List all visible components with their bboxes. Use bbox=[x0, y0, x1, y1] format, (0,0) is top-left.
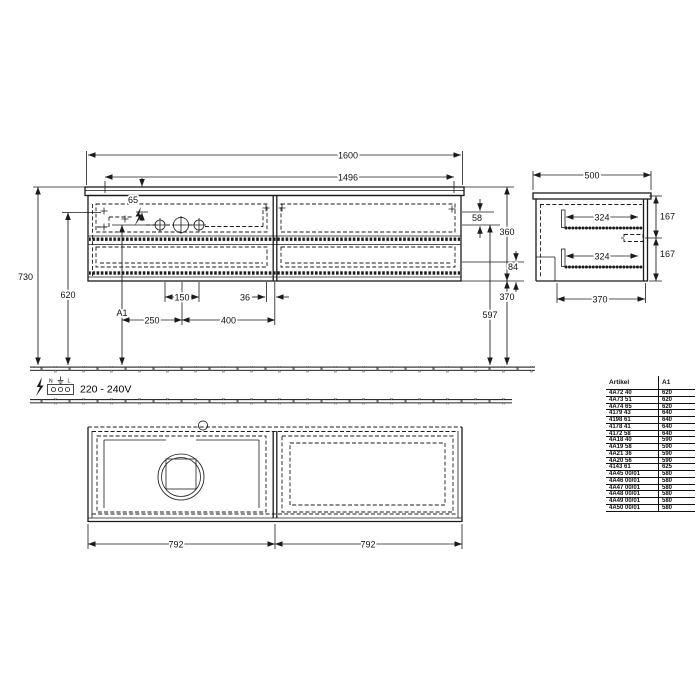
table-row: 4A18 40590 bbox=[606, 437, 695, 444]
countertop bbox=[85, 187, 464, 196]
side-view: 500 324 324 167 167 370 bbox=[533, 171, 675, 305]
wall-hatch-upper bbox=[30, 366, 535, 373]
dim-inner-width-label: 1496 bbox=[338, 173, 358, 183]
article-number: 4A19 58 bbox=[606, 444, 658, 450]
siphon-space bbox=[166, 459, 196, 489]
dim-gap-167-label: 167 bbox=[660, 249, 675, 259]
dim-total-height-label: 730 bbox=[18, 272, 33, 282]
dim-total-width-label: 1600 bbox=[338, 151, 358, 161]
countertop-side bbox=[533, 193, 651, 199]
article-number: 4A49 00/01 bbox=[606, 498, 658, 504]
table-row: 4A21 36590 bbox=[606, 451, 695, 458]
dim-side-370-label: 370 bbox=[592, 295, 607, 305]
table-row: 4A20 56590 bbox=[606, 458, 695, 465]
dim-58-label: 58 bbox=[472, 213, 482, 223]
table-row: 4178 41640 bbox=[606, 424, 695, 431]
a1-value: 580 bbox=[658, 505, 695, 511]
a1-value: 580 bbox=[658, 485, 695, 491]
technical-drawing-page: 1600 1496 65 730 620 A1 150 36 250 400 bbox=[0, 0, 700, 700]
article-number: 4A48 00/01 bbox=[606, 491, 658, 497]
table-header-a1: A1 bbox=[658, 376, 695, 389]
article-number: 4A21 36 bbox=[606, 451, 658, 457]
dim-620-label: 620 bbox=[60, 290, 75, 300]
article-number: 4A46 00/01 bbox=[606, 478, 658, 484]
table-row: 4A72 40620 bbox=[606, 390, 695, 397]
dim-792-left-label: 792 bbox=[168, 540, 183, 550]
dim-gap-167-label: 167 bbox=[660, 212, 675, 222]
hole-circles bbox=[153, 216, 206, 234]
siphon-cutout-circle bbox=[158, 454, 204, 500]
dim-597-label: 597 bbox=[482, 310, 497, 320]
dim-370-label: 370 bbox=[499, 292, 514, 302]
a1-value: 580 bbox=[658, 478, 695, 484]
article-number: 4A73 51 bbox=[606, 397, 658, 403]
terminal-n-label: N bbox=[49, 379, 53, 385]
a1-value: 590 bbox=[658, 437, 695, 443]
a1-value: 620 bbox=[658, 390, 695, 396]
lightning-bolt-icon bbox=[36, 377, 44, 397]
table-row: 4198 61640 bbox=[606, 417, 695, 424]
drawer-runner-band bbox=[89, 271, 460, 274]
table-row: 4A48 00/01580 bbox=[606, 491, 695, 498]
dim-360-label: 360 bbox=[499, 227, 514, 237]
table-row: 4A50 00/01580 bbox=[606, 505, 695, 512]
drawer-box-dashed bbox=[281, 247, 455, 267]
drawer-inner-dashed bbox=[290, 443, 445, 505]
dim-84-label: 84 bbox=[508, 262, 518, 272]
table-row: 4A19 58590 bbox=[606, 444, 695, 451]
dim-rail-324-label: 324 bbox=[594, 213, 609, 223]
voltage-label: 220 - 240V bbox=[80, 384, 131, 396]
plan-view: 792 792 bbox=[88, 421, 462, 550]
terminal-l-label: L bbox=[68, 379, 71, 385]
table-row: 4A46 00/01580 bbox=[606, 478, 695, 485]
a1-value: 580 bbox=[658, 491, 695, 497]
article-number: 4143 61 bbox=[606, 464, 658, 470]
drawer-footprint-dashed bbox=[282, 436, 453, 512]
article-number: 4A74 65 bbox=[606, 404, 658, 410]
a1-value: 590 bbox=[658, 451, 695, 457]
table-row: 4A47 00/01580 bbox=[606, 485, 695, 492]
table-header-artikel: Artikel bbox=[606, 376, 658, 389]
dim-depth-500-label: 500 bbox=[584, 171, 599, 181]
table-row: 4A45 00/01580 bbox=[606, 471, 695, 478]
drawer-runner-band bbox=[89, 238, 460, 241]
table-row: 4179 43640 bbox=[606, 410, 695, 417]
a1-value: 620 bbox=[658, 397, 695, 403]
dim-150-label: 150 bbox=[174, 293, 189, 303]
dim-rail-324-label: 324 bbox=[594, 252, 609, 262]
article-table-body: 4A72 406204A73 516204A74 656204179 43640… bbox=[606, 390, 695, 512]
dim-top-offset-label: 65 bbox=[128, 195, 138, 205]
drawer-box-dashed bbox=[281, 204, 455, 232]
dim-400-label: 400 bbox=[221, 316, 236, 326]
vanity-drawing: 1600 1496 65 730 620 A1 150 36 250 400 bbox=[0, 0, 700, 700]
article-number: 4172 58 bbox=[606, 431, 658, 437]
basin-footprint-dashed bbox=[97, 436, 266, 512]
power-outlet-cutout bbox=[624, 235, 643, 242]
article-number: 4179 43 bbox=[606, 410, 658, 416]
dim-36-label: 36 bbox=[240, 293, 250, 303]
a1-value: 590 bbox=[658, 458, 695, 464]
a1-value: 580 bbox=[658, 471, 695, 477]
article-number: 4A45 00/01 bbox=[606, 471, 658, 477]
article-table: Artikel A1 4A72 406204A73 516204A74 6562… bbox=[606, 376, 695, 512]
power-connection-symbol: N L 220 - 240V bbox=[36, 377, 132, 397]
dim-792-right-label: 792 bbox=[360, 540, 375, 550]
front-dimensions: 1600 1496 65 730 620 A1 150 36 250 400 bbox=[18, 151, 524, 366]
table-row: 4A74 65620 bbox=[606, 404, 695, 411]
wall-hatch-lower bbox=[30, 398, 512, 405]
a1-value: 640 bbox=[658, 417, 695, 423]
article-number: 4A20 56 bbox=[606, 458, 658, 464]
table-header-row: Artikel A1 bbox=[606, 376, 695, 390]
earth-ground-icon bbox=[58, 377, 64, 384]
a1-value: 640 bbox=[658, 410, 695, 416]
article-number: 4A50 00/01 bbox=[606, 505, 658, 511]
table-row: 4143 61625 bbox=[606, 464, 695, 471]
table-row: 4A73 51620 bbox=[606, 397, 695, 404]
lightning-bolt-icon bbox=[135, 207, 143, 226]
mounting-cross-marks bbox=[101, 205, 456, 231]
article-number: 4178 41 bbox=[606, 424, 658, 430]
a1-value: 625 bbox=[658, 464, 695, 470]
table-row: 4172 58640 bbox=[606, 431, 695, 438]
table-row: 4A49 00/01580 bbox=[606, 498, 695, 505]
a1-value: 640 bbox=[658, 424, 695, 430]
dim-a1-label: A1 bbox=[116, 308, 127, 318]
tap-hole-circle bbox=[198, 421, 207, 430]
article-number: 4A47 00/01 bbox=[606, 485, 658, 491]
article-number: 4A72 40 bbox=[606, 390, 658, 396]
a1-value: 620 bbox=[658, 404, 695, 410]
article-number: 4A18 40 bbox=[606, 437, 658, 443]
a1-value: 590 bbox=[658, 444, 695, 450]
a1-value: 580 bbox=[658, 498, 695, 504]
a1-value: 640 bbox=[658, 431, 695, 437]
article-number: 4198 61 bbox=[606, 417, 658, 423]
front-view bbox=[85, 187, 464, 281]
dim-250-label: 250 bbox=[144, 316, 159, 326]
